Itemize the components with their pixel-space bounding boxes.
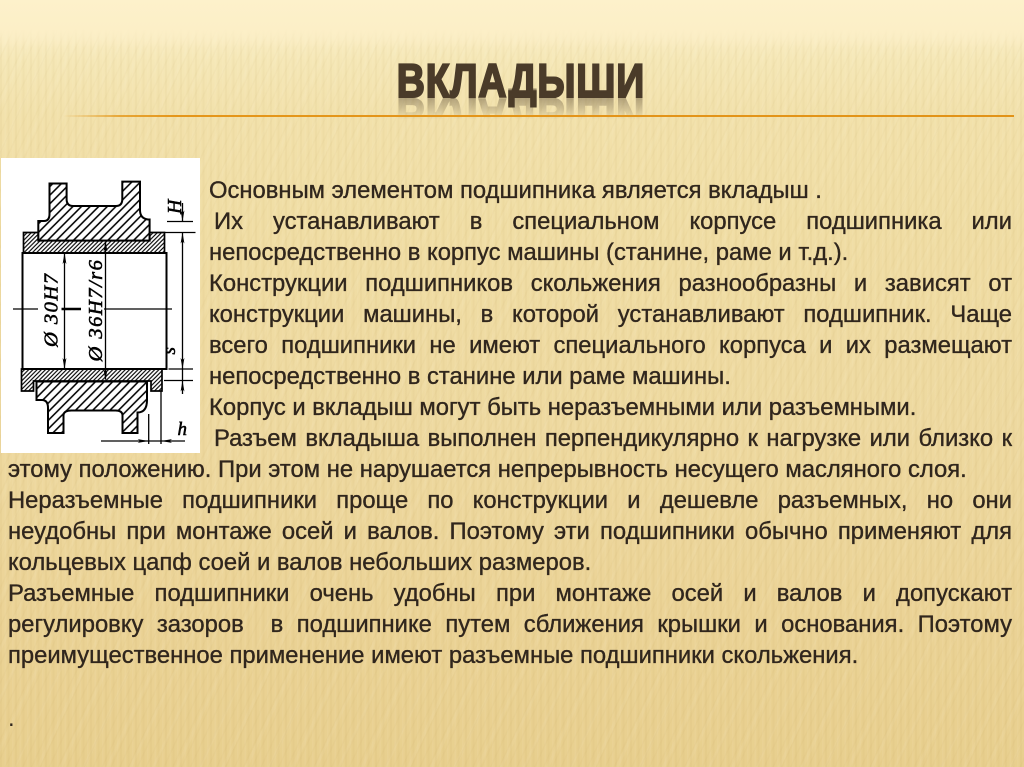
svg-text:Ø 36H7/r6: Ø 36H7/r6: [85, 259, 107, 363]
svg-text:s: s: [159, 346, 180, 354]
svg-text:H: H: [164, 198, 186, 215]
svg-text:h: h: [178, 419, 189, 440]
svg-text:Ø 30H7: Ø 30H7: [41, 273, 63, 348]
